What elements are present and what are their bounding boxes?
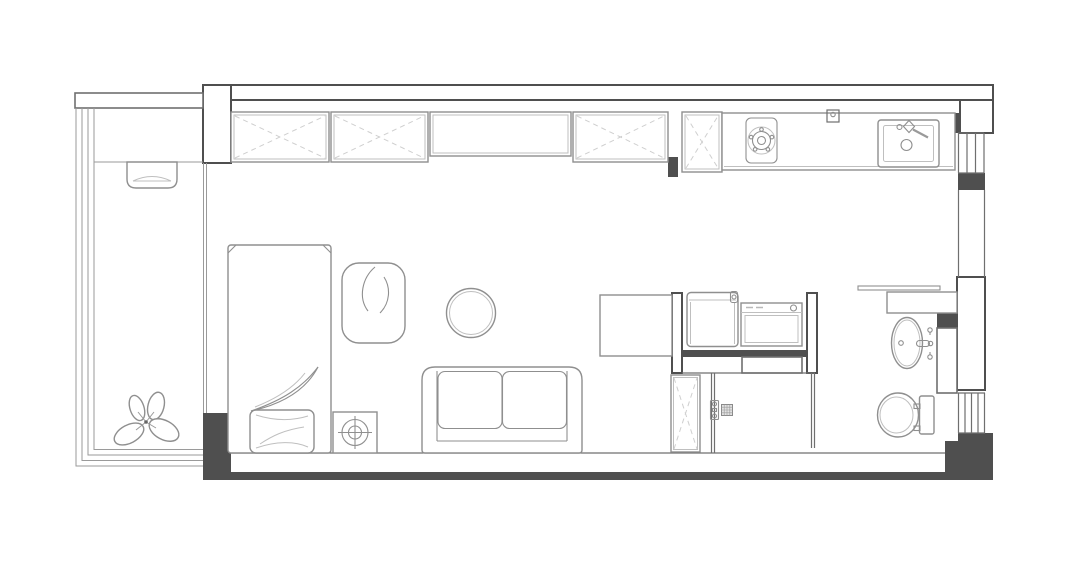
wardrobe-section-2 — [331, 112, 428, 162]
window-2 — [958, 393, 985, 433]
fridge — [682, 112, 722, 172]
loveseat-sofa — [422, 367, 582, 453]
window-1 — [958, 133, 984, 173]
tall-cabinet — [671, 375, 700, 452]
top-left-corner-wall — [203, 85, 231, 163]
right-wall-pier — [958, 173, 985, 190]
side-table-lamp — [333, 412, 377, 453]
pillow — [250, 410, 314, 453]
bottom-left-corner-wall — [203, 413, 231, 473]
niche-right-wall — [807, 293, 817, 373]
wardrobe-section-3 — [573, 112, 668, 162]
bottom-wall-band — [203, 472, 993, 480]
open-shelf — [430, 112, 571, 156]
bottom-right-corner-wall — [958, 433, 993, 480]
balcony-top-wall — [75, 93, 203, 108]
balcony — [75, 93, 207, 466]
wardrobe-section-1 — [231, 112, 329, 162]
shower-room — [682, 373, 815, 453]
laundry-niche — [687, 292, 802, 347]
vanity-counter — [887, 292, 957, 313]
floor-plan-drawing — [0, 0, 1080, 565]
living-area — [228, 245, 672, 453]
shower-right-wall — [812, 373, 815, 448]
single-bed — [228, 245, 331, 453]
floor-plan-stage — [0, 0, 1080, 565]
wardrobe-wall — [231, 112, 668, 162]
toilet — [878, 393, 935, 437]
fridge-wall-nub — [668, 157, 678, 177]
desk — [600, 295, 672, 356]
wash-basin — [892, 318, 933, 369]
kitchen — [682, 110, 955, 172]
vanity-wall-nub — [937, 313, 957, 328]
dryer — [741, 303, 802, 346]
bathroom-right-wall — [957, 277, 985, 390]
plant-stem — [144, 420, 148, 424]
shower-top-wall-step — [742, 357, 802, 373]
balcony-sliding-door-lines — [204, 163, 207, 413]
bottom-right-wall-step — [945, 441, 958, 472]
top-right-corner-wall — [960, 100, 993, 133]
niche-left-wall — [672, 293, 682, 373]
round-table — [447, 289, 496, 338]
lounge-chair — [342, 263, 405, 343]
right-wall-lines — [959, 190, 985, 277]
shower-left-wall — [712, 373, 715, 453]
ac-unit — [127, 162, 177, 188]
kitchen-sink — [878, 120, 939, 167]
mirror-shelf — [858, 286, 940, 290]
vanity-wall-strip — [937, 328, 957, 393]
top-wall-band — [203, 85, 993, 100]
plant — [111, 390, 183, 449]
shower-head — [722, 405, 733, 416]
washing-machine — [687, 292, 738, 347]
niche-bottom-wall — [682, 350, 807, 357]
